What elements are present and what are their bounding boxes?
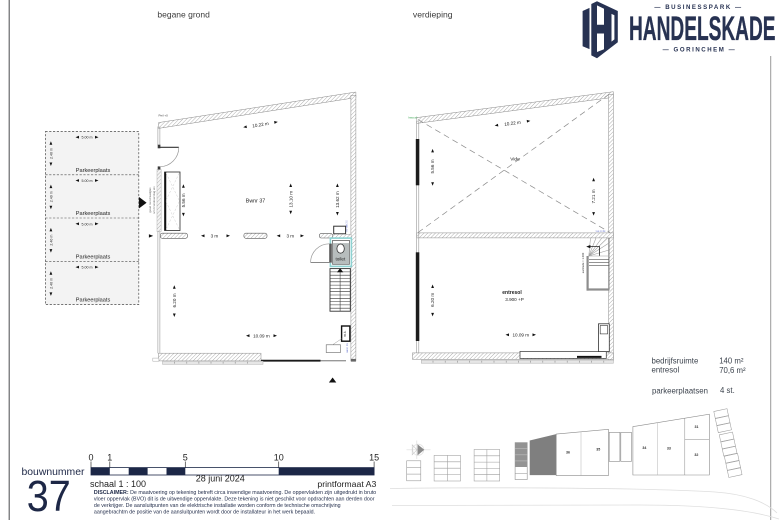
svg-text:vvo mt 4k: vvo mt 4k: [596, 230, 607, 233]
svg-text:13.62 m: 13.62 m: [335, 191, 340, 208]
svg-text:begane grond: begane grond: [157, 9, 210, 19]
svg-text:ivm brandoverslag eis: ivm brandoverslag eis: [152, 186, 156, 214]
svg-text:31: 31: [695, 425, 699, 429]
svg-text:aangebrachtm de positie van de: aangebrachtm de positie van de aansluitp…: [94, 509, 315, 515]
svg-text:DISCLAIMER: De maatvoering op: DISCLAIMER: De maatvoering op tekening b…: [94, 490, 376, 496]
svg-text:3 m: 3 m: [211, 234, 219, 239]
svg-text:bedrijfsruimte: bedrijfsruimte: [652, 357, 699, 366]
svg-text:2.40 m: 2.40 m: [49, 148, 53, 159]
svg-text:10.09 m: 10.09 m: [512, 333, 529, 338]
svg-text:5.00 m: 5.00 m: [82, 179, 93, 183]
svg-text:5.00 m: 5.00 m: [82, 136, 93, 140]
svg-text:schaal 1 : 100: schaal 1 : 100: [90, 479, 146, 489]
svg-text:10: 10: [274, 453, 284, 463]
svg-text:13.10 m: 13.10 m: [288, 191, 293, 208]
svg-text:7.21 m: 7.21 m: [591, 189, 596, 203]
svg-text:2.40 m: 2.40 m: [49, 278, 53, 289]
svg-text:printformaat A3: printformaat A3: [317, 479, 376, 489]
svg-text:entresol: entresol: [502, 290, 522, 296]
svg-text:Parkeerplaats: Parkeerplaats: [76, 254, 111, 260]
svg-text:32: 32: [694, 453, 698, 457]
svg-text:Vide: Vide: [510, 157, 520, 163]
svg-text:3.900 +P: 3.900 +P: [505, 297, 524, 302]
svg-text:33: 33: [667, 447, 671, 451]
svg-text:de verkrijger. De aansluitpunt: de verkrijger. De aansluitpunten van de …: [94, 503, 341, 509]
svg-text:5.00 m: 5.00 m: [82, 266, 93, 270]
svg-text:5.56 m: 5.56 m: [430, 159, 435, 173]
svg-text:2.40 m: 2.40 m: [49, 235, 53, 246]
svg-text:3 m: 3 m: [286, 234, 294, 239]
svg-text:37: 37: [27, 473, 71, 520]
svg-text:35: 35: [596, 448, 600, 452]
svg-text:10.09 m: 10.09 m: [253, 333, 270, 338]
svg-text:140 m²: 140 m²: [719, 357, 744, 366]
svg-text:6.20 m: 6.20 m: [430, 293, 435, 307]
svg-text:Bwnr 37: Bwnr 37: [246, 199, 265, 205]
svg-text:— GORINCHEM —: — GORINCHEM —: [663, 47, 737, 54]
svg-text:HANDELSKADE: HANDELSKADE: [629, 10, 776, 48]
svg-text:15: 15: [369, 453, 379, 463]
svg-text:2.40 m: 2.40 m: [49, 191, 53, 202]
svg-text:28 juni 2024: 28 juni 2024: [196, 474, 245, 484]
svg-text:6.20 m: 6.20 m: [172, 293, 177, 307]
svg-text:4 st.: 4 st.: [720, 386, 735, 395]
svg-text:70,6 m²: 70,6 m²: [719, 366, 746, 375]
svg-text:Parkeerplaats: Parkeerplaats: [76, 211, 111, 217]
svg-text:parkeerplaatsen: parkeerplaatsen: [652, 386, 708, 395]
svg-text:Parkeerplaats: Parkeerplaats: [76, 298, 111, 304]
svg-text:mv unit 3.0: mv unit 3.0: [346, 220, 349, 232]
svg-text:aantrede = 1.000: aantrede = 1.000: [581, 252, 585, 273]
svg-text:5: 5: [183, 453, 188, 463]
svg-text:entresol: entresol: [652, 366, 680, 375]
svg-text:34: 34: [642, 446, 646, 450]
svg-text:Parkeerplaats: Parkeerplaats: [76, 168, 111, 174]
svg-text:m.k.: m.k.: [343, 330, 347, 336]
svg-text:verdieping: verdieping: [413, 9, 453, 19]
svg-text:toilet: toilet: [336, 256, 346, 261]
svg-text:5.56 m: 5.56 m: [181, 193, 186, 207]
svg-text:36: 36: [566, 450, 570, 454]
svg-text:aansl. mv: aansl. mv: [347, 342, 349, 353]
svg-text:5.00 m: 5.00 m: [82, 222, 93, 226]
svg-text:vloer oppervlak (BVO) dit is d: vloer oppervlak (BVO) dit is de uitwendi…: [94, 496, 375, 502]
svg-text:Peil +0: Peil +0: [159, 114, 169, 118]
svg-text:1: 1: [107, 453, 112, 463]
svg-text:0: 0: [88, 453, 93, 463]
